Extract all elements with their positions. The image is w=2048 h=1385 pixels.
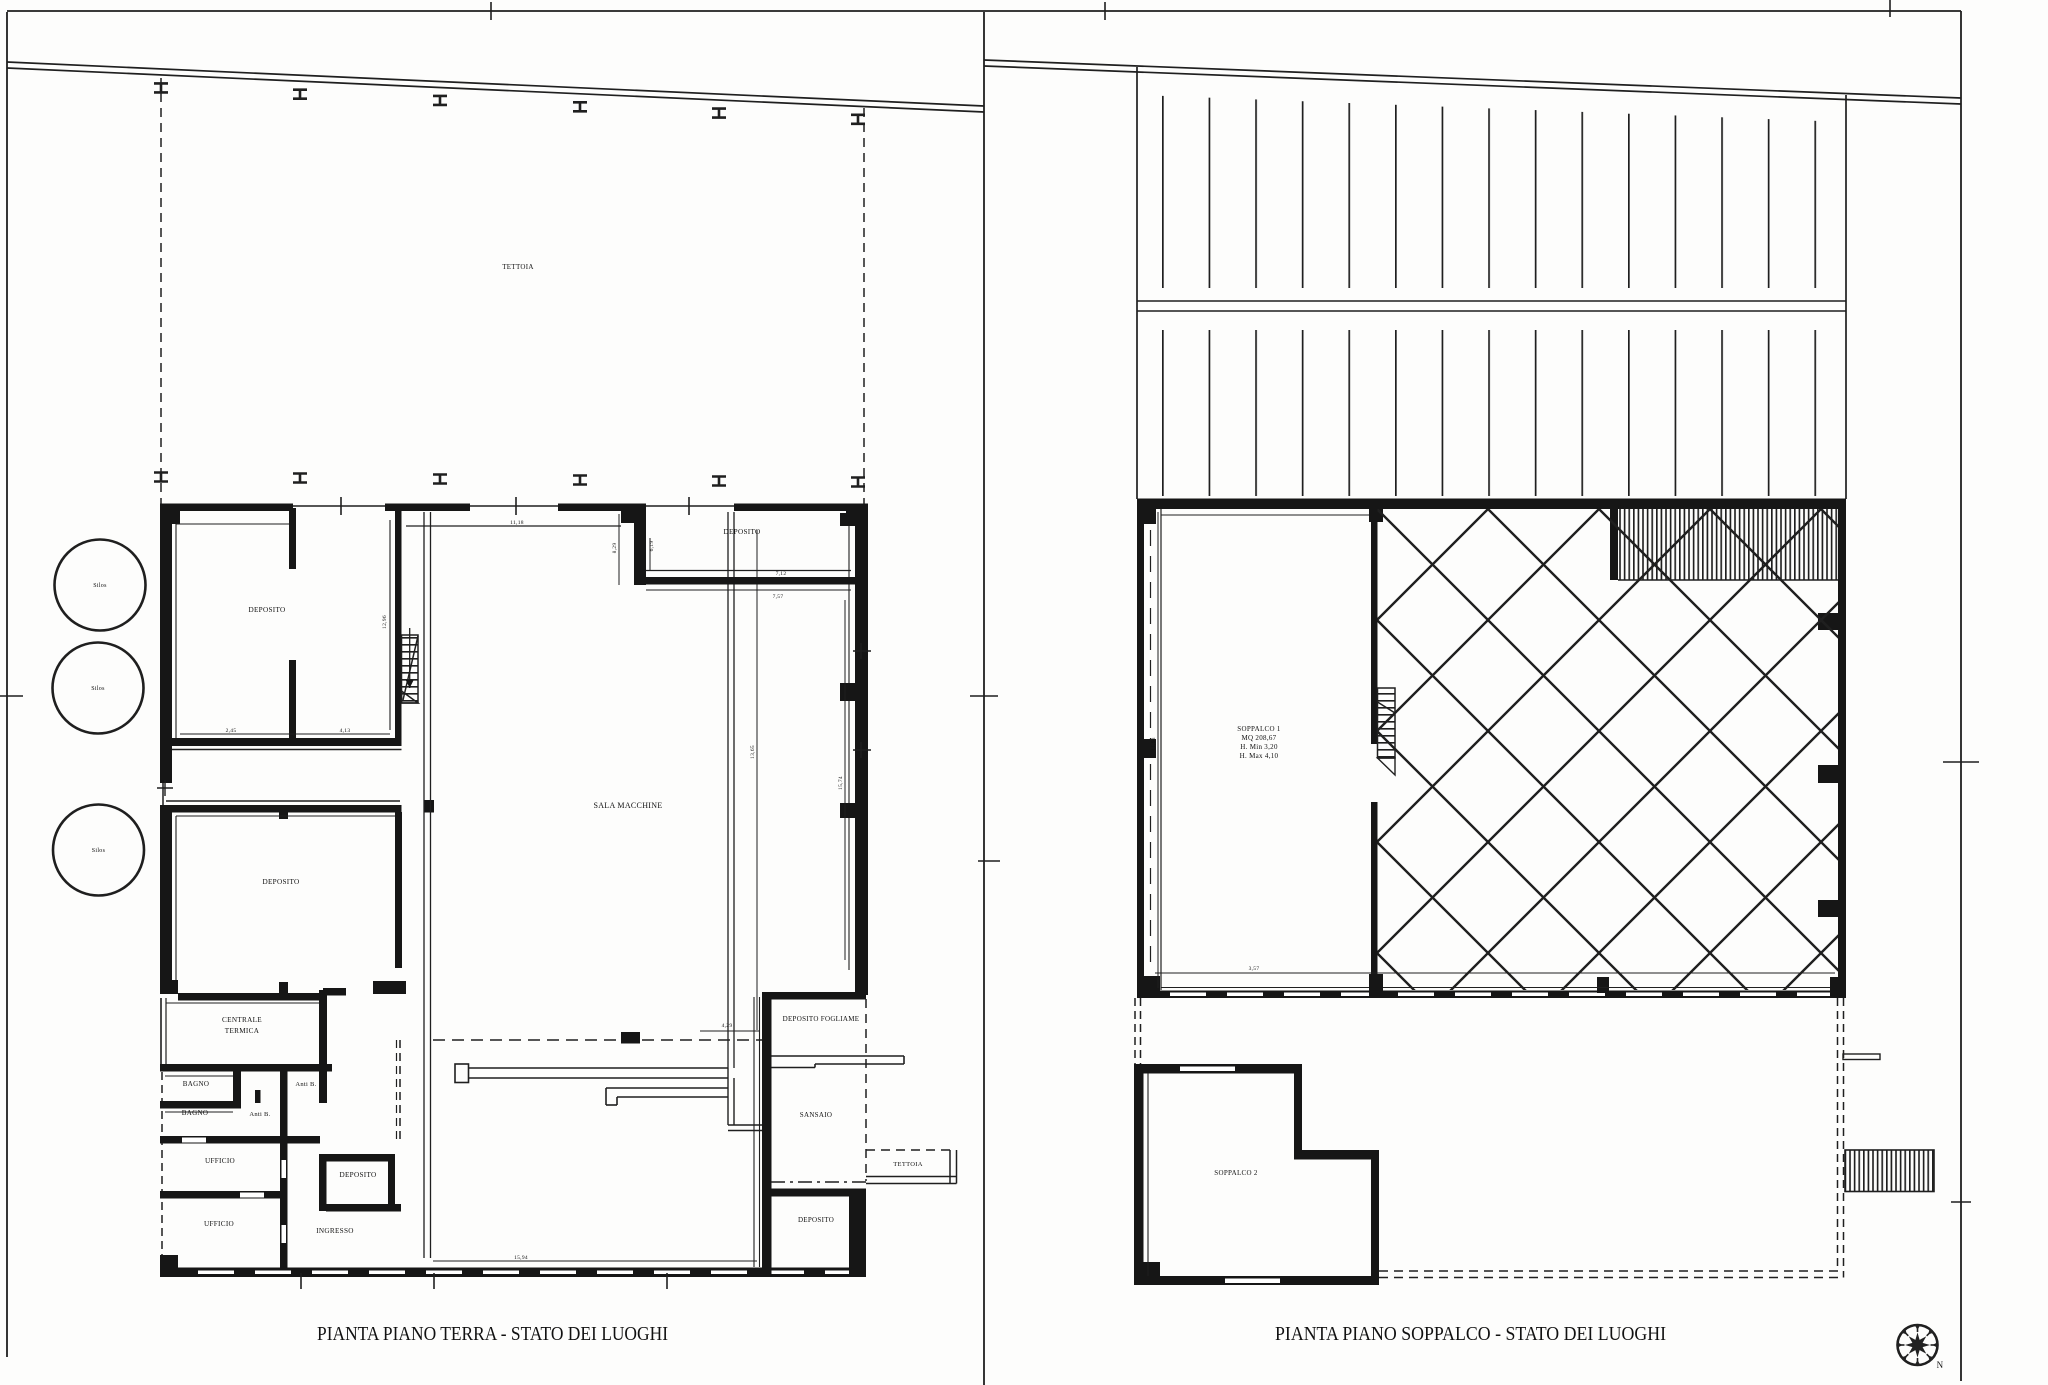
svg-text:8,29: 8,29: [612, 543, 618, 554]
svg-text:15,94: 15,94: [514, 1255, 528, 1261]
svg-text:11,18: 11,18: [510, 520, 524, 526]
svg-text:Anti B.: Anti B.: [295, 1081, 316, 1088]
svg-text:MQ 208,67: MQ 208,67: [1242, 734, 1277, 742]
svg-text:DEPOSITO: DEPOSITO: [798, 1216, 834, 1224]
svg-text:DEPOSITO: DEPOSITO: [248, 606, 285, 614]
svg-text:UFFICIO: UFFICIO: [205, 1157, 235, 1165]
svg-text:Silos: Silos: [93, 583, 107, 589]
svg-text:BAGNO: BAGNO: [183, 1080, 209, 1088]
svg-text:Silos: Silos: [92, 848, 106, 854]
svg-text:BAGNO: BAGNO: [182, 1109, 208, 1117]
svg-text:6,19: 6,19: [649, 541, 655, 552]
svg-text:Anti B.: Anti B.: [249, 1111, 270, 1118]
svg-text:PIANTA PIANO SOPPALCO - STATO: PIANTA PIANO SOPPALCO - STATO DEI LUOGHI: [1275, 1323, 1666, 1345]
svg-text:DEPOSITO FOGLIAME: DEPOSITO FOGLIAME: [783, 1015, 860, 1023]
svg-text:DEPOSITO: DEPOSITO: [723, 528, 760, 536]
svg-text:INGRESSO: INGRESSO: [316, 1227, 354, 1235]
svg-text:13,65: 13,65: [750, 745, 756, 759]
svg-text:2,45: 2,45: [226, 728, 237, 734]
svg-text:SOPPALCO 2: SOPPALCO 2: [1214, 1169, 1258, 1177]
svg-text:H. Min 3,20: H. Min 3,20: [1240, 743, 1278, 751]
svg-text:7,57: 7,57: [773, 594, 784, 600]
svg-text:CENTRALE: CENTRALE: [222, 1016, 262, 1024]
svg-text:SANSAIO: SANSAIO: [800, 1111, 832, 1119]
svg-text:DEPOSITO: DEPOSITO: [339, 1171, 376, 1179]
svg-text:H. Max 4,10: H. Max 4,10: [1240, 752, 1279, 760]
svg-text:3,57: 3,57: [1249, 966, 1260, 972]
svg-text:SALA MACCHINE: SALA MACCHINE: [593, 801, 662, 810]
svg-text:SOPPALCO 1: SOPPALCO 1: [1237, 725, 1281, 733]
svg-text:4,29: 4,29: [722, 1023, 733, 1029]
svg-text:N: N: [1937, 1360, 1944, 1370]
svg-text:PIANTA PIANO TERRA - STATO DEI: PIANTA PIANO TERRA - STATO DEI LUOGHI: [317, 1323, 668, 1345]
svg-text:12,96: 12,96: [382, 615, 388, 629]
svg-text:15,74: 15,74: [838, 776, 844, 790]
svg-text:DEPOSITO: DEPOSITO: [262, 878, 299, 886]
svg-text:TERMICA: TERMICA: [225, 1027, 260, 1035]
svg-text:7,12: 7,12: [776, 571, 787, 577]
svg-text:11,03: 11,03: [1151, 737, 1157, 751]
svg-text:UFFICIO: UFFICIO: [204, 1220, 234, 1228]
svg-text:TETTOIA: TETTOIA: [502, 263, 534, 271]
svg-text:TETTOIA: TETTOIA: [893, 1161, 922, 1168]
svg-text:4,13: 4,13: [340, 728, 351, 734]
svg-text:Silos: Silos: [91, 686, 105, 692]
